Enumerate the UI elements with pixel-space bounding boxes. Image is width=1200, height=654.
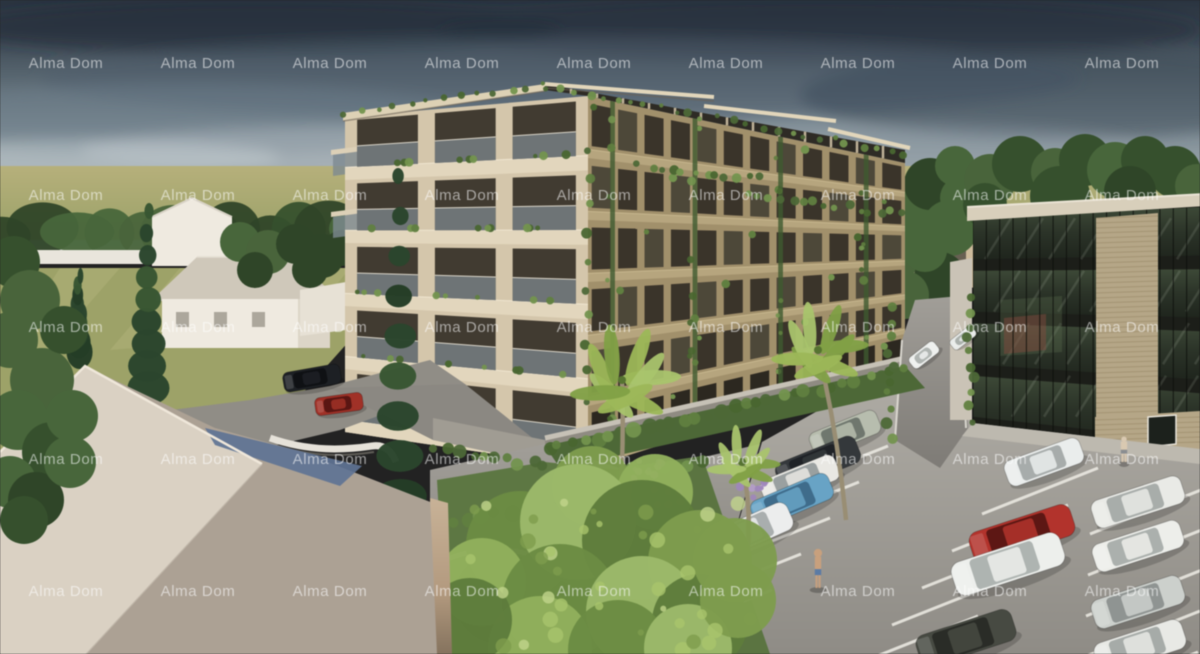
- watermark-text: Alma Dom: [425, 55, 500, 72]
- glass-railing: [513, 206, 576, 230]
- watermark-text: Alma Dom: [953, 55, 1028, 72]
- watermark-text: Alma Dom: [29, 55, 104, 72]
- watermark-text: Alma Dom: [953, 583, 1028, 600]
- watermark-text: Alma Dom: [1085, 451, 1160, 468]
- watermark-text: Alma Dom: [689, 451, 764, 468]
- watermark-text: Alma Dom: [689, 319, 764, 336]
- watermark-text: Alma Dom: [689, 583, 764, 600]
- watermark-text: Alma Dom: [293, 55, 368, 72]
- watermark-text: Alma Dom: [557, 583, 632, 600]
- glass-railing: [435, 137, 496, 163]
- watermark-text: Alma Dom: [689, 187, 764, 204]
- climbing-plant: [693, 118, 698, 435]
- watermark-text: Alma Dom: [689, 55, 764, 72]
- entrance-door: [1148, 415, 1176, 447]
- watermark-text: Alma Dom: [1085, 55, 1160, 72]
- watermark-text: Alma Dom: [161, 583, 236, 600]
- watermark-text: Alma Dom: [425, 319, 500, 336]
- glass-railing: [513, 278, 576, 304]
- tree: [237, 252, 273, 288]
- watermark-text: Alma Dom: [1085, 187, 1160, 204]
- tree: [903, 228, 947, 272]
- watermark-text: Alma Dom: [557, 319, 632, 336]
- watermark-text: Alma Dom: [293, 187, 368, 204]
- watermark-text: Alma Dom: [1085, 583, 1160, 600]
- watermark-text: Alma Dom: [425, 583, 500, 600]
- watermark-text: Alma Dom: [161, 451, 236, 468]
- climbing-plant: [778, 136, 783, 408]
- architectural-rendering: Alma DomAlma DomAlma DomAlma DomAlma Dom…: [0, 0, 1200, 654]
- watermark-text: Alma Dom: [953, 319, 1028, 336]
- watermark-text: Alma Dom: [557, 187, 632, 204]
- watermark-text: Alma Dom: [953, 451, 1028, 468]
- watermark-text: Alma Dom: [293, 319, 368, 336]
- watermark-text: Alma Dom: [557, 451, 632, 468]
- watermark-text: Alma Dom: [953, 187, 1028, 204]
- watermark-text: Alma Dom: [29, 187, 104, 204]
- watermark-text: Alma Dom: [29, 451, 104, 468]
- watermark-text: Alma Dom: [821, 583, 896, 600]
- watermark-text: Alma Dom: [557, 55, 632, 72]
- watermark-text: Alma Dom: [161, 187, 236, 204]
- tree: [292, 252, 328, 288]
- tree: [0, 496, 48, 544]
- watermark-text: Alma Dom: [161, 319, 236, 336]
- watermark-text: Alma Dom: [821, 319, 896, 336]
- watermark-text: Alma Dom: [161, 55, 236, 72]
- watermark-text: Alma Dom: [293, 451, 368, 468]
- watermark-text: Alma Dom: [425, 451, 500, 468]
- watermark-text: Alma Dom: [29, 583, 104, 600]
- watermark-text: Alma Dom: [29, 319, 104, 336]
- watermark-text: Alma Dom: [425, 187, 500, 204]
- watermark-text: Alma Dom: [1085, 319, 1160, 336]
- tree: [46, 390, 98, 442]
- watermark-text: Alma Dom: [821, 187, 896, 204]
- watermark-text: Alma Dom: [821, 451, 896, 468]
- watermark-text: Alma Dom: [293, 583, 368, 600]
- watermark-text: Alma Dom: [821, 55, 896, 72]
